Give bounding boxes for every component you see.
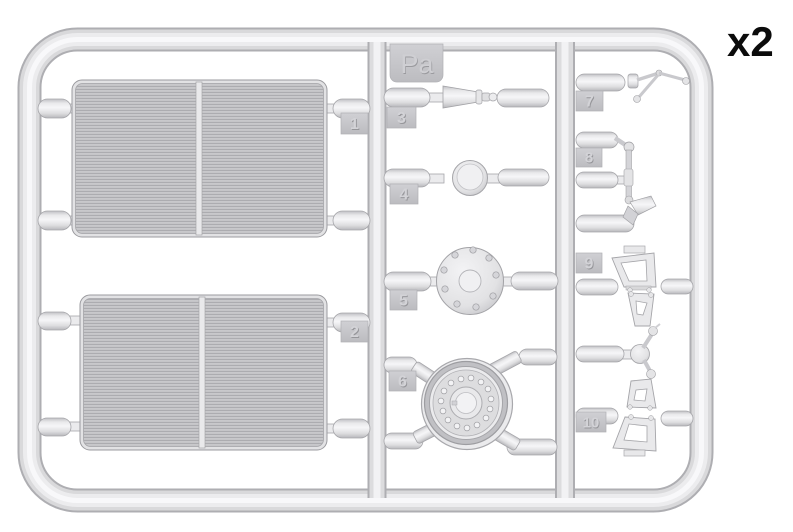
gate-pill xyxy=(498,169,549,186)
gate-pill xyxy=(519,349,557,365)
part-9-pedal xyxy=(612,246,656,326)
pedal-linkage xyxy=(631,324,661,379)
sprue-code-label: Pa xyxy=(400,49,434,79)
gate-pill xyxy=(384,272,431,291)
gate-pill xyxy=(576,279,618,295)
gate-pill xyxy=(38,312,71,330)
svg-text:10: 10 xyxy=(583,415,600,432)
svg-text:7: 7 xyxy=(585,94,594,111)
svg-text:5: 5 xyxy=(399,293,408,310)
part-tag-7: 7 7 xyxy=(576,91,603,111)
part-4-disc xyxy=(453,161,488,196)
gate-pill xyxy=(576,172,618,188)
part-tag-8: 8 8 xyxy=(576,148,602,167)
gate-pill xyxy=(576,74,625,91)
part-tag-3: 3 3 xyxy=(387,107,416,128)
gate-pill xyxy=(661,279,693,294)
gate-pill xyxy=(38,211,71,230)
part-tag-10: 10 10 xyxy=(576,412,606,432)
part-3-cone xyxy=(443,86,497,108)
part-7-lever xyxy=(628,70,690,103)
gate-pill xyxy=(333,211,370,230)
gate-pill xyxy=(576,132,618,148)
part-tag-9: 9 9 xyxy=(576,253,602,273)
part-5-flange-disc xyxy=(437,247,504,315)
part-1-radiator xyxy=(72,80,327,237)
sprue-svg: Pa Pa 1 1 2 2 3 3 4 4 5 5 xyxy=(0,0,793,532)
part-6-wheel xyxy=(422,359,513,450)
gate-pill xyxy=(661,411,693,426)
quantity-label: x2 xyxy=(727,18,774,65)
gate-pill xyxy=(576,346,624,362)
gate-pill xyxy=(38,418,71,436)
part-10-pedal xyxy=(613,379,656,456)
part-2-radiator xyxy=(80,295,327,450)
part-tag-1: 1 1 xyxy=(341,113,368,134)
svg-text:2: 2 xyxy=(350,324,359,341)
part-tag-5: 5 5 xyxy=(390,290,417,310)
gate-pill xyxy=(511,272,558,290)
gate-pill xyxy=(497,89,549,107)
svg-text:9: 9 xyxy=(585,256,594,273)
svg-text:3: 3 xyxy=(397,110,406,127)
svg-text:6: 6 xyxy=(398,374,407,391)
gate-pill xyxy=(333,419,370,438)
svg-text:4: 4 xyxy=(400,187,409,204)
sprue-diagram: Pa Pa 1 1 2 2 3 3 4 4 5 5 xyxy=(0,0,793,532)
part-tag-2: 2 2 xyxy=(341,321,368,342)
sprue-code-tag: Pa Pa xyxy=(390,44,443,82)
gate-pill xyxy=(38,99,71,118)
svg-text:8: 8 xyxy=(585,150,593,167)
gate-pill xyxy=(384,88,430,107)
svg-text:1: 1 xyxy=(350,116,359,133)
part-tag-4: 4 4 xyxy=(390,184,418,204)
gate-neck xyxy=(428,174,444,183)
part-tag-6: 6 6 xyxy=(389,371,416,391)
